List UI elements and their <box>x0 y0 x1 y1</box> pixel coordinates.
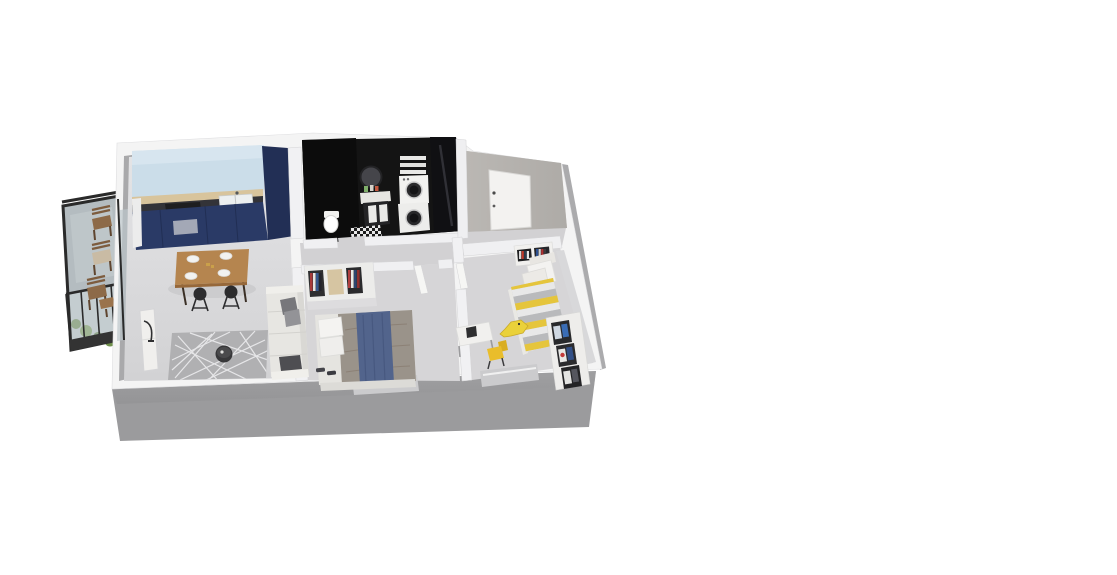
bookcase-cubby <box>551 320 572 345</box>
dryer <box>398 202 430 233</box>
wall-bedroom1-bedroom2-top <box>452 237 464 263</box>
desk-computer <box>466 326 477 338</box>
wardrobe-cubby-clothes <box>346 267 363 294</box>
wall-hall-bedroom1-right <box>438 259 453 269</box>
door-handle <box>492 191 495 194</box>
bed1-pillow <box>318 317 343 338</box>
coffee-table <box>216 346 233 363</box>
vanity-door <box>379 204 388 222</box>
bathroom-door-opening <box>338 236 366 252</box>
bathroom-mirror <box>361 167 382 188</box>
toiletry-item <box>375 186 379 191</box>
door-keyhole <box>493 205 496 208</box>
plate <box>220 253 232 260</box>
washer <box>399 175 429 205</box>
bed1 <box>315 310 416 391</box>
toiletry-item <box>364 186 368 192</box>
kitchen <box>132 145 294 250</box>
front-door <box>489 170 531 230</box>
table-centerpiece <box>206 263 210 266</box>
toilet <box>324 211 339 233</box>
towel-shelves <box>400 156 426 174</box>
bookcase-cubby <box>556 343 577 367</box>
bookcase-cubby <box>561 365 582 389</box>
vanity-door <box>368 205 377 223</box>
plate <box>218 270 230 277</box>
kitchen-fridge <box>132 198 142 248</box>
sofa-pillow <box>284 309 301 327</box>
floorplan-render <box>0 0 1117 575</box>
cup <box>220 350 223 353</box>
wall-bath-hall-left <box>303 238 338 249</box>
plate <box>185 273 197 280</box>
table-centerpiece <box>211 265 214 268</box>
wall-bath-entry-divider <box>456 139 468 239</box>
wardrobe <box>304 262 377 310</box>
entry <box>459 150 567 232</box>
wall-living-hall-top <box>288 147 304 239</box>
faucet <box>235 191 238 194</box>
wardrobe-cubby-clothes <box>308 270 325 297</box>
plate <box>187 256 199 263</box>
floorplan-page <box>0 0 1117 575</box>
wardrobe-cubby-box <box>327 269 344 295</box>
bed1-pillow <box>319 336 344 357</box>
toiletry-item <box>370 185 374 191</box>
sofa <box>266 285 309 380</box>
kitchen-appliance-front <box>173 219 198 235</box>
sofa-blanket <box>279 355 302 371</box>
